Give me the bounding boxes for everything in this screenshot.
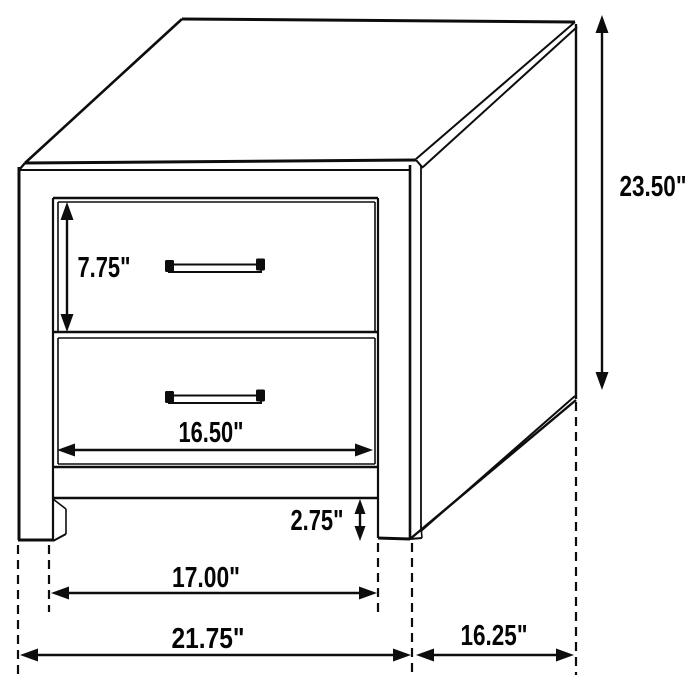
nightstand-dimension-diagram: 23.50" 7.75" 16.50" 2.75" 17.00" 21.75": [0, 0, 700, 700]
dim-label-top-drawer-height: 7.75": [78, 252, 131, 284]
top-drawer-handle-left-post: [165, 260, 174, 272]
bottom-drawer-handle-left-post: [165, 391, 174, 403]
bottom-drawer-handle-right-post: [256, 390, 265, 402]
dim-label-side-depth: 16.25": [461, 620, 528, 652]
right-leg-side-edge: [421, 526, 422, 538]
top-drawer-handle-bar: [169, 265, 261, 273]
background: [0, 0, 700, 700]
right-leg-side-bottom: [410, 538, 422, 539]
right-leg-bottom: [378, 538, 410, 539]
top-drawer-handle-right-post: [256, 259, 265, 271]
bottom-drawer-handle-bar: [169, 396, 261, 404]
dim-label-overall-height: 23.50": [620, 171, 687, 203]
dim-label-overall-width: 21.75": [172, 623, 245, 655]
dim-label-leg-clearance: 2.75": [291, 505, 344, 537]
dim-label-drawer-width: 16.50": [179, 417, 244, 449]
dim-label-width-between-legs: 17.00": [172, 562, 240, 594]
